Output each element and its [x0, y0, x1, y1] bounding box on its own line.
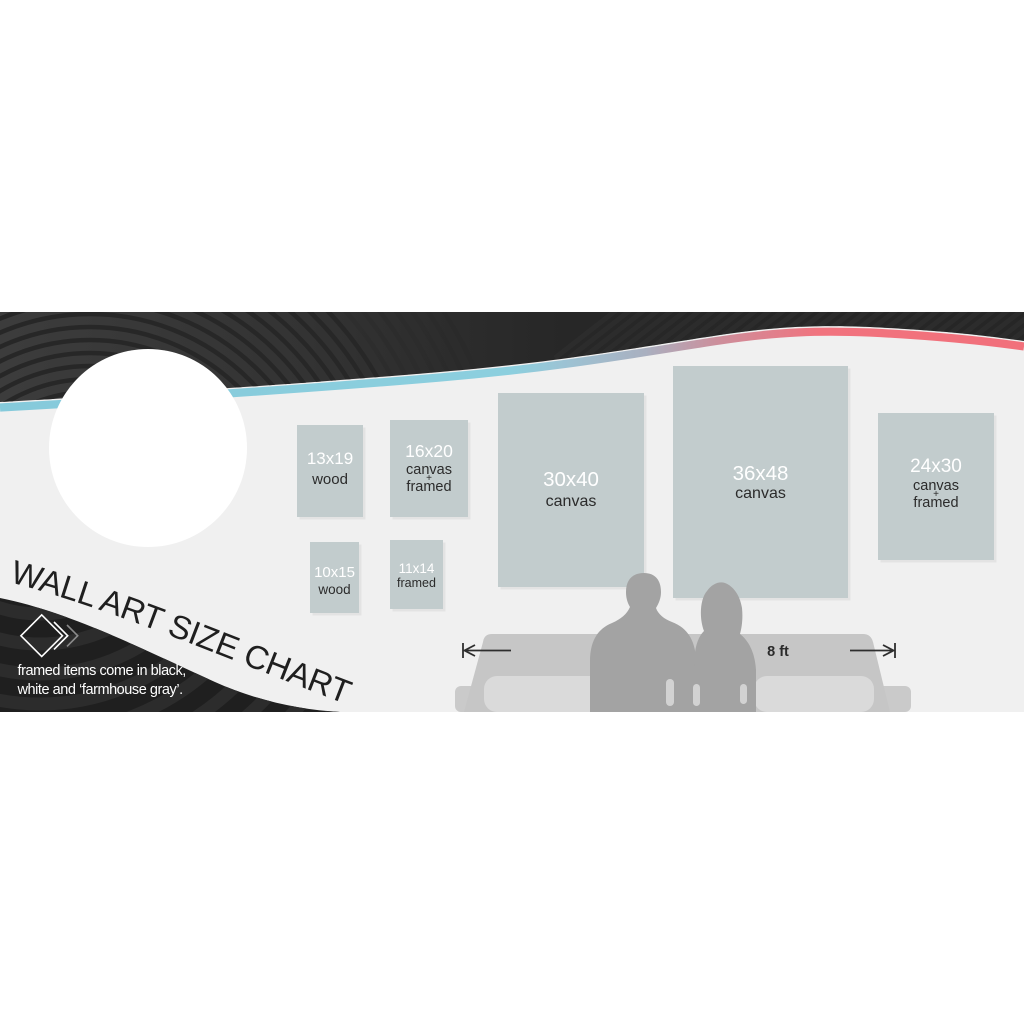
svg-text:24x30: 24x30 [910, 456, 962, 477]
svg-text:framed: framed [397, 576, 436, 590]
svg-text:canvas: canvas [546, 493, 597, 510]
svg-text:11x14: 11x14 [399, 561, 435, 576]
svg-text:13x19: 13x19 [307, 449, 353, 468]
svg-text:framed items come in black,: framed items come in black, [18, 663, 186, 679]
svg-text:wood: wood [311, 471, 348, 488]
svg-text:30x40: 30x40 [543, 468, 599, 491]
svg-text:36x48: 36x48 [733, 462, 789, 485]
svg-text:canvas: canvas [735, 485, 786, 502]
svg-text:framed: framed [913, 495, 958, 511]
svg-text:wood: wood [317, 582, 350, 597]
svg-text:white and ‘farmhouse gray’.: white and ‘farmhouse gray’. [17, 682, 183, 698]
svg-text:framed: framed [406, 479, 451, 495]
svg-text:8 ft: 8 ft [767, 644, 789, 660]
svg-text:10x15: 10x15 [314, 564, 355, 581]
svg-text:16x20: 16x20 [405, 441, 453, 461]
